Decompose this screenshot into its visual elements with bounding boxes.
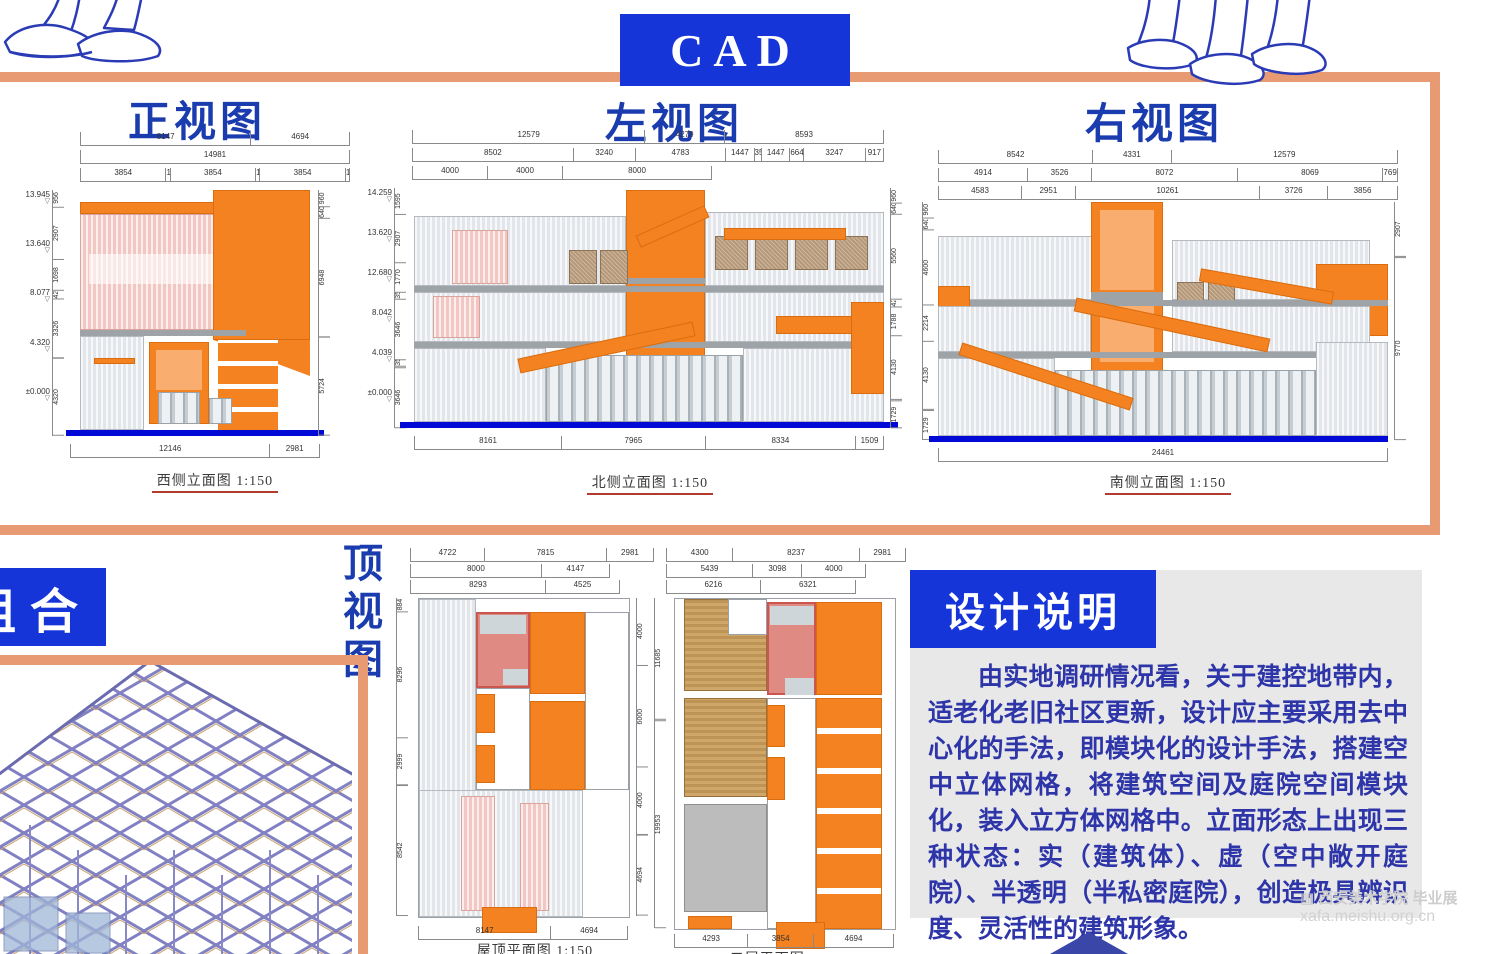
dimension-label: 12579 [412,130,644,144]
dimension-label: 8.077 [4,288,50,337]
dimension-label: 6948 [319,219,330,337]
wireframe-structure-drawing [0,665,352,954]
poster: CAD 正视图 左视图 右视图 81474694 14981 385414638… [0,0,1500,954]
dimension-label: 8237 [732,548,858,562]
dimension-label: 4694 [813,934,894,948]
dimension-label: 5560 [891,214,902,300]
dimension-label: 4000 [801,564,866,578]
dimension-label: 640 [891,204,902,215]
plan-detail [770,606,814,626]
dimension-label: 884 [397,598,408,612]
dimension-label: 4331 [1092,150,1171,164]
dimension-label: 4000 [412,166,487,180]
dimension-label: 4783 [635,148,726,162]
level-markers: 14.25913.62012.6808.0424.039±0.000 [346,188,392,428]
cad-title: CAD [670,24,800,77]
dimension-label: 3646 [395,367,406,428]
roof-plan-figure: 472278152981 80004147 82934525 884829629… [400,548,670,954]
dimension-label: 12579 [1171,150,1398,164]
cad-title-box: CAD [620,14,850,86]
wireframe-frame-top [0,655,368,665]
facade-block [213,190,310,340]
dimension-label: 8593 [724,130,884,144]
dimension-label: 19953 [655,720,666,928]
dimension-label: 353 [754,148,762,162]
orange-duct [724,228,846,240]
dimension-label: 3726 [1259,186,1327,200]
caption-text: 屋顶平面图 1:150 [472,944,598,954]
dimension-label: 2951 [1021,186,1075,200]
plan-room [530,701,585,790]
front-elevation-caption: 西侧立面图 1:150 [60,470,370,490]
dimension-label: 8.042 [346,308,392,348]
dimension-row: 62166321 [666,580,856,594]
dimension-label: 1509 [855,436,884,450]
dimension-label: 4279 [644,130,724,144]
dimension-label: 10261 [1075,186,1260,200]
dimension-label: 2981 [269,444,320,458]
dimension-label: 3247 [803,148,865,162]
dimension-label: 3526 [1027,168,1091,182]
ground-line [66,430,324,436]
sketch-feet-left-icon [0,0,300,72]
second-floor-plan-drawing [674,598,896,930]
dimension-row: 82934525 [410,580,620,594]
watermark: ▦ 西安美术学院 毕业展 xafa.meishu.org.cn [1300,890,1500,926]
floor-band [626,278,706,284]
dimension-label: 6216 [666,580,760,594]
facade-block [433,296,480,338]
glass-door [158,392,199,424]
dimension-row: 4914352680728069769 [938,168,1398,182]
dimension-label: 4000 [637,767,648,835]
mesh-panel [600,250,628,284]
dimension-label: 3854 [80,168,165,182]
dimension-label: 3326 [53,299,64,358]
dimension-label: 4320 [53,358,64,436]
dimension-column: 29079770 [1394,202,1407,440]
dimension-label: 917 [865,148,884,162]
dimension-column: 884829629998542 [396,598,409,916]
dimension-label: 7815 [484,548,606,562]
combo-title: 组合 [0,572,92,642]
dimension-label: 13.620 [346,228,392,268]
dimension-label: 13.945 [4,190,50,239]
dimension-label: 7965 [561,436,705,450]
dimension-label: 2981 [859,548,906,562]
dimension-label: 426 [891,300,902,307]
dimension-row: 400040008000 [412,166,712,180]
dimension-label: 1770 [395,263,406,293]
dimension-row: 429338544694 [674,934,894,948]
second-floor-plan-figure: 430082372981 543930984000 62166321 11685… [658,548,918,954]
dimension-label: 3240 [573,148,635,162]
dimension-label: 8542 [397,785,408,916]
dimension-column: 96064069485724 [318,190,331,436]
dimension-column: 15952907177035436463543646 [394,188,407,428]
plan-room [684,698,768,797]
dimension-label: 8293 [410,580,545,594]
dimension-row: 385414638541463854146 [80,168,350,182]
dimension-label: 4600 [923,230,934,305]
second-floor-plan-caption: 二层平面图 1:150 [658,948,918,954]
dimension-label: 4130 [891,336,902,400]
plan-room [476,745,495,783]
mesh-panel [795,236,828,270]
dimension-label: 2907 [395,215,406,263]
facade-panel [1100,210,1154,290]
plan-room [816,602,882,694]
plan-room [767,705,785,748]
facade-window [89,254,216,284]
dimension-label: 2214 [923,305,934,342]
dimension-label: 960 [319,190,330,207]
dimension-label: 4914 [938,168,1027,182]
dimension-row: 850232404783144735314476643247917 [412,148,884,162]
dimension-label: 2999 [397,739,408,785]
glass-door [209,398,232,424]
dimension-label: 1447 [761,148,789,162]
facade-block [452,230,508,284]
dimension-label: 8072 [1091,168,1237,182]
mesh-panel [569,250,597,284]
dimension-label: 6000 [637,666,648,767]
dimension-label: 6321 [760,580,856,594]
dimension-label: 354 [395,360,406,367]
dimension-label: 4300 [666,548,732,562]
dimension-label: 4583 [938,186,1021,200]
dimension-label: 3098 [752,564,801,578]
plan-area [461,796,495,910]
dimension-label: 4694 [250,132,350,146]
dimension-label: 12.680 [346,268,392,308]
dimension-label: 956 [53,190,64,208]
dimension-column: 9606404600221441301729 [922,202,935,440]
dimension-label: 640 [319,207,330,219]
ground-line [400,422,898,428]
dimension-label: 769 [1382,168,1398,182]
plan-room [585,612,629,790]
dimension-label: 3854 [170,168,255,182]
dimension-label: 4694 [550,926,628,940]
mesh-panel [755,236,788,270]
dimension-label: 4694 [637,835,648,916]
plan-detail [785,678,814,695]
dimension-label: 8502 [412,148,573,162]
design-notes-title: 设计说明 [945,580,1121,638]
dimension-label: 8334 [705,436,855,450]
dimension-label: 1447 [725,148,753,162]
dimension-column: 9562907169842633264320 [52,190,65,436]
glass-wall [546,355,743,422]
right-elevation-caption: 南侧立面图 1:150 [928,472,1408,492]
front-elevation-drawing [80,190,310,436]
dimension-label: 8147 [418,926,550,940]
design-notes-panel: 设计说明 由实地调研情况看，关于建控地带内，适老化老旧社区更新，设计应主要采用去… [910,570,1422,918]
dimension-label: 146 [345,168,350,182]
dimension-label: 4722 [410,548,484,562]
mesh-panel [835,236,868,270]
dimension-row: 8161796583341509 [414,436,884,450]
dimension-row: 430082372981 [666,548,906,562]
dimension-label: 4.320 [4,338,50,387]
dimension-column: 1168519953 [654,598,667,928]
dimension-label: 2981 [606,548,654,562]
dimension-label: ±0.000 [4,387,50,436]
dimension-label: 14.259 [346,188,392,228]
watermark-line1: 西安美术学院 毕业展 [1318,890,1457,907]
dimension-label: 4525 [545,580,620,594]
dimension-label: 640 [923,219,934,230]
plan-room [684,804,768,913]
dimension-label: 24461 [938,448,1388,462]
dimension-label: 5439 [666,564,752,578]
watermark-logo-icon: ▦ [1300,890,1318,907]
dimension-label: 2907 [53,208,64,260]
dimension-label: 960 [891,188,902,204]
dimension-row: 543930984000 [666,564,866,578]
facade-block [80,336,144,430]
dimension-row: 24461 [938,448,1388,462]
left-elevation-caption: 北侧立面图 1:150 [400,472,900,492]
front-elevation-figure: 81474694 14981 385414638541463854146 13.… [60,132,370,498]
dimension-label: 3854 [747,934,813,948]
dimension-column: 4000600040004694 [636,598,649,916]
plan-detail [688,916,732,929]
facade-panel [156,350,202,390]
wireframe-frame-right [358,655,368,954]
dimension-row: 1257942798593 [412,130,884,144]
dimension-label: 4293 [674,934,747,948]
caption-text: 西侧立面图 1:150 [152,474,278,493]
dimension-label: 8542 [938,150,1092,164]
dimension-label: 8000 [562,166,712,180]
dimension-label: 354 [395,293,406,300]
right-elevation-figure: 8542433112579 4914352680728069769 458329… [928,150,1408,495]
mesh-panel [715,236,748,270]
roof-plan-caption: 屋顶平面图 1:150 [400,940,670,954]
dimension-label: 12146 [70,444,269,458]
dimension-row: 81474694 [418,926,628,940]
plan-detail [480,615,526,634]
dimension-label: 11685 [655,598,666,720]
plan-room [530,612,585,695]
dimension-label: ±0.000 [346,388,392,428]
dimension-label: 1595 [395,188,406,215]
dimension-label: 1698 [53,260,64,291]
dimension-label: 2907 [1395,202,1406,257]
dimension-row: 80004147 [410,564,610,578]
dimension-label: 5724 [319,337,330,436]
dimension-row: 472278152981 [410,548,654,562]
dimension-label: 4147 [541,564,610,578]
dimension-label: 960 [923,202,934,219]
facade-block [1316,342,1388,436]
facade-block [80,202,225,214]
glass-wall [1055,370,1316,436]
left-elevation-drawing [414,190,884,428]
floor-band [1091,292,1163,300]
dimension-label: 8069 [1237,168,1383,182]
facade-shelf [94,358,135,364]
dimension-label: 426 [53,291,64,299]
dimension-row: 8542433112579 [938,150,1398,164]
dimension-row: 81474694 [80,132,350,146]
dimension-label: 8147 [80,132,250,146]
combo-title-box: 组合 [0,568,106,646]
ground-line [929,436,1388,442]
dimension-label: 4130 [923,342,934,410]
caption-text: 南侧立面图 1:150 [1105,476,1231,495]
plan-detail [503,669,528,685]
design-notes-title-box: 设计说明 [910,570,1156,648]
dimension-label: 4.039 [346,348,392,388]
plan-area [520,803,549,911]
watermark-line2: xafa.meishu.org.cn [1300,908,1500,926]
dimension-row: 14981 [80,150,350,164]
sketch-feet-right-icon [1120,0,1350,102]
dimension-label: 13.640 [4,239,50,288]
dimension-label: 8296 [397,612,408,738]
plan-detail [728,599,768,635]
left-elevation-figure: 1257942798593 85023240478314473531447664… [400,130,900,502]
dimension-label: 9770 [1395,257,1406,440]
dimension-label: 14981 [80,150,350,164]
plan-room [767,757,785,800]
facade-block [851,302,884,394]
dimension-label: 4000 [637,598,648,666]
plan-area [419,790,583,917]
dimension-label: 1788 [891,308,902,336]
dimension-label: 8000 [410,564,541,578]
plan-room [476,694,495,732]
dimension-label: 3856 [1327,186,1398,200]
level-markers: 13.94513.6408.0774.320±0.000 [4,190,50,436]
dimension-label: 3854 [259,168,344,182]
dimension-column: 9606405560426178841301729 [890,188,903,428]
dimension-label: 1729 [891,400,902,428]
dimension-label: 664 [789,148,802,162]
caption-text: 北侧立面图 1:150 [587,476,713,495]
dimension-label: 3646 [395,300,406,360]
roof-plan-drawing [418,598,630,918]
plan-room [816,698,882,929]
dimension-row: 458329511026137263856 [938,186,1398,200]
dimension-row: 121462981 [70,444,320,458]
right-elevation-drawing [938,202,1388,442]
dimension-label: 8161 [414,436,561,450]
dimension-label: 4000 [487,166,562,180]
